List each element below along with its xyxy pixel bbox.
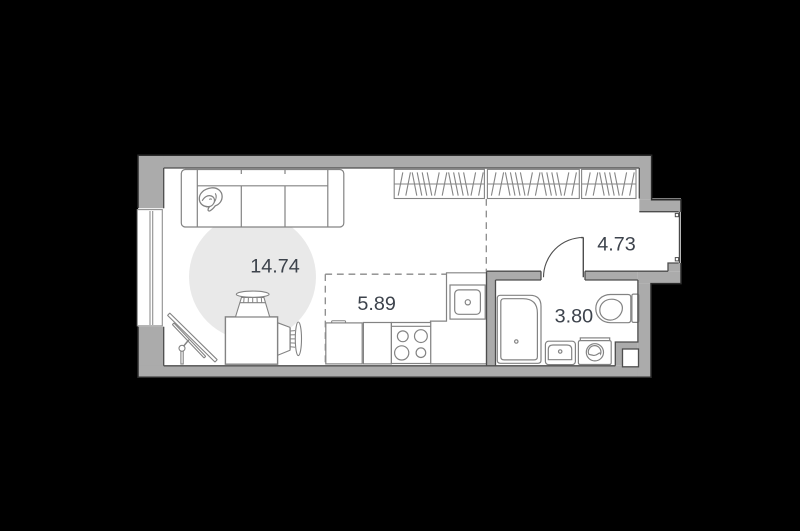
svg-text:4.73: 4.73 [597,233,636,255]
svg-text:3.80: 3.80 [555,306,594,328]
svg-text:14.74: 14.74 [250,256,300,278]
svg-text:5.89: 5.89 [357,293,396,315]
